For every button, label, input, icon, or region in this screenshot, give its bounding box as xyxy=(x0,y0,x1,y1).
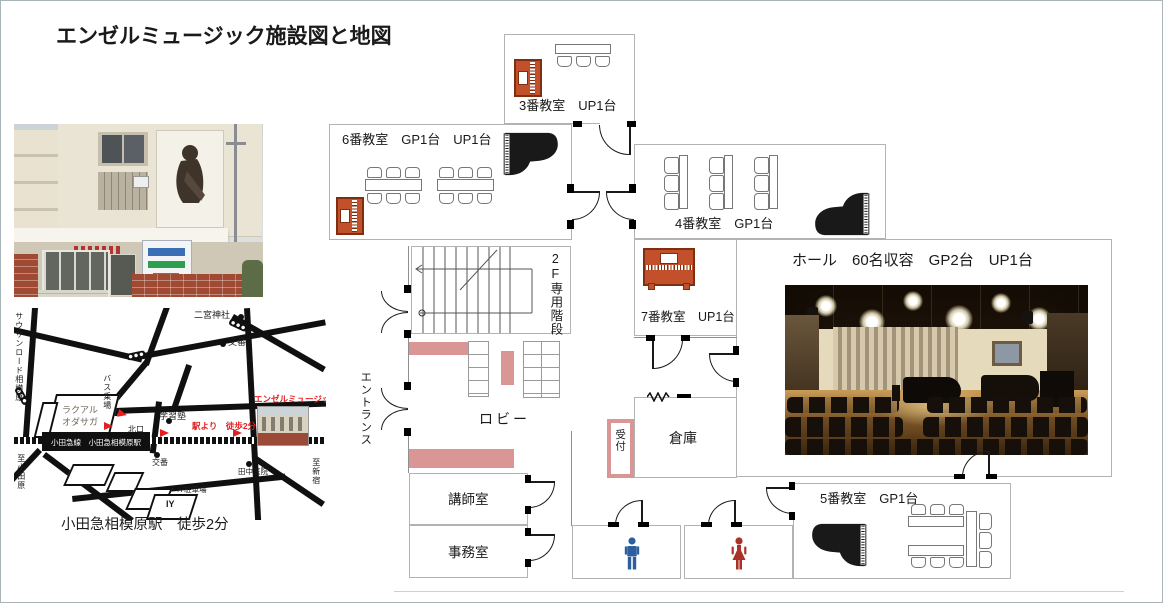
door-leaf xyxy=(572,191,600,193)
grand-piano-icon xyxy=(813,191,871,237)
chair xyxy=(386,167,401,178)
chair xyxy=(386,193,401,204)
street-map: サウザンロード相模原 二宮神社 交番 バス乗場 ラクアル オダサガ 学習塾 北口… xyxy=(14,308,326,520)
storage-label: 倉庫 xyxy=(669,430,697,446)
station-box: 小田急線 小田急相模原駅 xyxy=(42,432,150,451)
window-glass xyxy=(124,135,144,163)
upright-piano-icon xyxy=(643,248,695,286)
chair xyxy=(664,157,679,174)
building-photo xyxy=(14,124,263,297)
piano-keys xyxy=(530,62,535,94)
map-label-shrine: 二宮神社 xyxy=(194,311,230,321)
piano-music-desk xyxy=(340,209,350,223)
road xyxy=(23,308,38,438)
table xyxy=(966,511,977,567)
chair xyxy=(439,167,454,178)
table xyxy=(365,179,422,191)
chair xyxy=(911,504,926,515)
wall xyxy=(634,337,646,338)
shrub xyxy=(242,260,263,297)
office-label: 事務室 xyxy=(448,545,489,561)
map-label-iy-parking: IY駐車場 xyxy=(177,486,207,494)
table xyxy=(769,155,778,209)
staircase-diagram xyxy=(412,247,570,333)
mural-panel xyxy=(156,130,224,228)
shutter-zigzag xyxy=(647,392,671,402)
table xyxy=(679,155,688,209)
route-arrow-icon xyxy=(104,422,113,430)
page-title: エンゼルミュージック施設図と地図 xyxy=(56,25,392,49)
entrance-steps xyxy=(38,290,108,297)
map-label-station: 小田急線 小田急相模原駅 xyxy=(51,438,141,447)
door-jamb xyxy=(525,528,531,536)
entrance-label: エントランス xyxy=(358,371,371,446)
chair xyxy=(405,167,420,178)
reception-booth: 受付 xyxy=(607,419,634,478)
mini-photo-windows xyxy=(262,417,304,431)
map-label-angel-music: エンゼルミュージック xyxy=(254,395,326,404)
sign-text-band xyxy=(148,248,185,256)
upright-piano-icon xyxy=(514,59,542,97)
door-jamb xyxy=(638,522,649,527)
chair xyxy=(595,56,610,67)
route-arrow-icon xyxy=(160,429,169,437)
shrine-dot xyxy=(238,314,244,320)
door-jamb xyxy=(681,335,690,341)
chair xyxy=(576,56,591,67)
reception-label: 受付 xyxy=(614,429,626,452)
map-caption: 小田急相模原駅 徒歩2分 xyxy=(61,517,229,534)
table xyxy=(908,516,964,527)
route-arrow-icon xyxy=(117,409,128,419)
male-icon xyxy=(623,537,641,571)
audience-chair-row xyxy=(787,397,899,413)
map-label-bus-stop: バス乗場 xyxy=(102,374,111,410)
room-7-label: 7番教室 UP1台 xyxy=(641,310,735,324)
door-jamb xyxy=(954,474,965,479)
door-arc xyxy=(381,291,408,312)
sign-text-band xyxy=(148,261,185,268)
map-label-cram-school: 学習塾 xyxy=(159,412,186,422)
wall xyxy=(690,337,737,338)
upright-piano-icon xyxy=(336,197,364,235)
chair xyxy=(367,193,382,204)
restroom-male xyxy=(572,525,681,579)
stairs-label: 2F専用階段 xyxy=(548,252,562,336)
door-jamb xyxy=(733,346,739,355)
room-3: 3番教室 UP1台 xyxy=(504,34,635,124)
door-arc xyxy=(766,488,793,514)
audience-chair-row xyxy=(927,397,1087,413)
door-jamb xyxy=(646,335,655,341)
door-jamb xyxy=(701,522,712,527)
lobby-sofa xyxy=(541,341,560,398)
chair xyxy=(557,56,572,67)
map-label-to-odawara: 至小田原 xyxy=(16,454,25,490)
piano-music-desk xyxy=(660,253,678,264)
room-7: 7番教室 UP1台 xyxy=(634,239,737,336)
room-6: 6番教室 GP1台 UP1台 xyxy=(329,124,572,240)
grand-piano-icon xyxy=(502,131,560,177)
door-jamb xyxy=(404,382,411,390)
lobby-bench xyxy=(409,342,468,355)
door-leaf xyxy=(529,481,555,483)
piano-leg xyxy=(683,283,690,290)
brick-wall xyxy=(14,254,38,297)
room-5-label: 5番教室 GP1台 xyxy=(820,492,918,507)
lobby-sofa xyxy=(468,341,489,397)
canopy xyxy=(14,228,228,242)
chair xyxy=(911,557,926,568)
piano-keys xyxy=(646,265,692,270)
restroom-female xyxy=(684,525,793,579)
door-jamb xyxy=(733,378,739,387)
map-label-walk-note: 駅より 徒歩2分 xyxy=(192,422,256,431)
wall xyxy=(408,246,409,285)
wall xyxy=(408,435,409,473)
hall-label: ホール 60名収容 GP2台 UP1台 xyxy=(792,252,1033,269)
wall xyxy=(394,591,1124,592)
chair xyxy=(949,557,964,568)
lobby-label: ロビー xyxy=(479,411,530,427)
door-jamb xyxy=(404,285,411,293)
audience-chair-row xyxy=(785,439,1088,455)
table xyxy=(908,545,964,556)
map-label-tanaka-clinic: 田中医院 xyxy=(238,468,268,476)
door-leaf xyxy=(652,339,654,369)
door-jamb xyxy=(789,512,795,520)
chair xyxy=(979,532,992,549)
hall: ホール 60名収容 GP2台 UP1台 xyxy=(736,239,1112,477)
road xyxy=(143,308,172,366)
map-label-police-north: 交番 xyxy=(228,338,246,348)
map-label-lacual-2: オダサガ xyxy=(62,418,98,428)
window-glass xyxy=(102,135,122,163)
room-5: 5番教室 GP1台 xyxy=(793,483,1011,579)
map-label-southern-road: サウザンロード相模原 xyxy=(14,312,23,402)
door-arc xyxy=(381,388,408,409)
door-arc xyxy=(572,192,600,220)
chair xyxy=(979,513,992,530)
chair xyxy=(979,551,992,568)
door-arc xyxy=(381,409,408,430)
piano-keys xyxy=(352,200,357,232)
chair xyxy=(664,193,679,210)
hall-photo xyxy=(785,285,1088,455)
door-jamb xyxy=(789,482,795,490)
door-jamb xyxy=(629,184,636,193)
chair xyxy=(458,167,473,178)
ceiling-light xyxy=(903,291,923,311)
chair xyxy=(709,193,724,210)
door-jamb xyxy=(567,220,574,229)
door-jamb xyxy=(404,428,411,436)
audience-chair-row xyxy=(785,417,903,437)
door-arc xyxy=(599,125,629,155)
table xyxy=(555,44,611,54)
stairwell: 2F専用階段 xyxy=(411,246,571,334)
facility-map-page: エンゼルミュージック施設図と地図 xyxy=(0,0,1163,603)
door-arc xyxy=(606,192,634,220)
door-jamb xyxy=(525,475,531,483)
chair xyxy=(367,167,382,178)
wall-picture xyxy=(992,341,1022,366)
piano-leg xyxy=(648,283,655,290)
door-jamb xyxy=(525,559,531,567)
speaker xyxy=(1022,311,1033,324)
chair xyxy=(930,504,945,515)
door-arc xyxy=(529,482,555,508)
map-label-to-shinjuku: 至新宿 xyxy=(311,458,320,485)
door-jamb xyxy=(627,121,636,127)
door-jamb xyxy=(573,121,582,127)
table xyxy=(437,179,494,191)
grand-piano-icon xyxy=(810,522,868,568)
audience-chair-row xyxy=(923,417,1088,437)
chair xyxy=(754,157,769,174)
door-jamb xyxy=(986,474,997,479)
room-6-label: 6番教室 GP1台 UP1台 xyxy=(342,133,492,148)
police-box-dot xyxy=(220,341,226,347)
mural-musician-figure xyxy=(157,131,223,227)
female-icon xyxy=(730,537,748,571)
room-4: 4番教室 GP1台 xyxy=(634,144,886,239)
map-label-lacual-1: ラクアル xyxy=(62,406,98,416)
teachers-room-label: 講師室 xyxy=(448,492,489,508)
office-room: 事務室 xyxy=(409,525,528,578)
chair xyxy=(439,193,454,204)
map-label-iy: IY xyxy=(166,500,175,510)
table xyxy=(724,155,733,209)
chair xyxy=(477,167,492,178)
chair xyxy=(664,175,679,192)
lobby-counter xyxy=(409,449,514,468)
door-jamb xyxy=(608,522,619,527)
door-arc xyxy=(653,339,683,369)
storage-room: 倉庫 xyxy=(634,397,737,478)
room-4-label: 4番教室 GP1台 xyxy=(675,217,773,232)
door-leaf xyxy=(529,534,555,536)
chair xyxy=(405,193,420,204)
lobby-sofa xyxy=(523,341,542,398)
door-leaf xyxy=(629,125,631,155)
chair xyxy=(709,157,724,174)
pole-crossarm xyxy=(226,142,246,145)
chair xyxy=(458,193,473,204)
road xyxy=(172,364,192,409)
ceiling-light xyxy=(815,295,837,317)
door-jamb xyxy=(567,184,574,193)
chair xyxy=(477,193,492,204)
chair xyxy=(754,175,769,192)
wall xyxy=(408,338,409,382)
door-arc xyxy=(529,535,555,561)
door-jamb xyxy=(404,330,411,338)
ceiling-light xyxy=(991,293,1011,313)
piano-music-desk xyxy=(518,71,528,85)
chair xyxy=(930,557,945,568)
map-label-police-south: 交番 xyxy=(152,459,168,468)
chair xyxy=(754,193,769,210)
building-block xyxy=(63,464,115,486)
room-3-label: 3番教室 UP1台 xyxy=(519,99,617,114)
door-jamb xyxy=(525,506,531,514)
door-jamb xyxy=(629,220,636,229)
ac-unit xyxy=(133,176,149,188)
lobby-table xyxy=(501,351,514,385)
chair xyxy=(949,504,964,515)
map-mini-building-photo xyxy=(257,406,309,446)
teachers-room: 講師室 xyxy=(409,473,528,525)
door-jamb xyxy=(731,522,742,527)
chair xyxy=(709,175,724,192)
wall-segment xyxy=(677,394,691,398)
wall xyxy=(571,431,572,526)
